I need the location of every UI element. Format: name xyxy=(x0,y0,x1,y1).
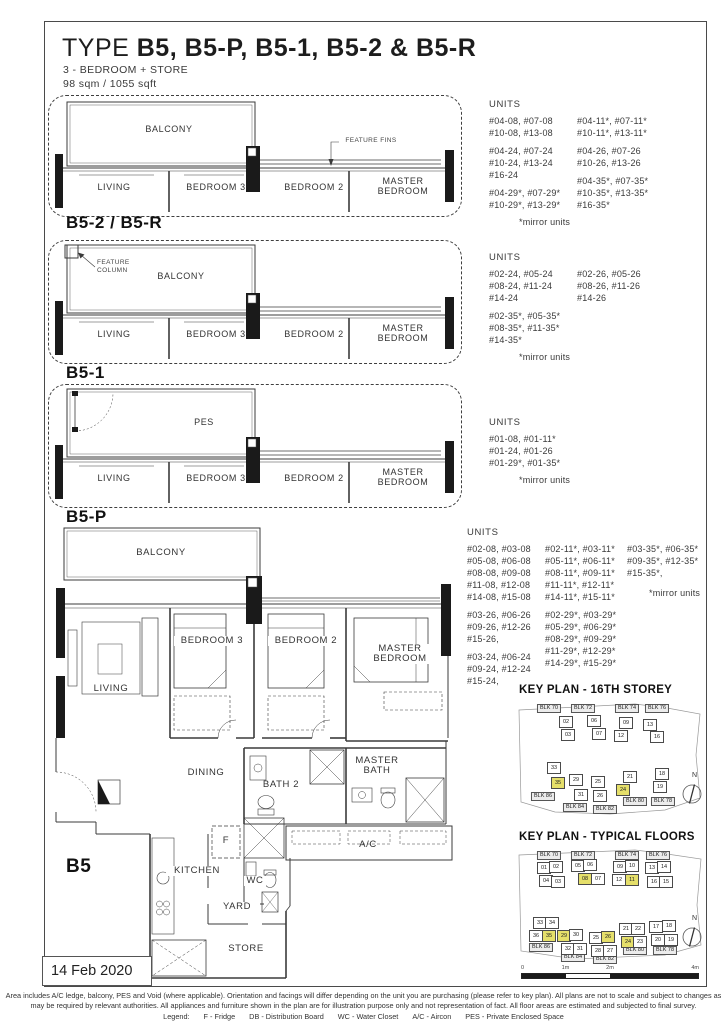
unit-list-line: #14-26 xyxy=(577,292,641,304)
room-label-master-bath: MASTER BATH xyxy=(350,756,404,776)
footer-disclaimer: Area includes A/C ledge, balcony, PES an… xyxy=(0,991,727,1022)
keyplan-unit-27: 27 xyxy=(603,945,617,957)
keyplan-unit-23: 23 xyxy=(633,936,647,948)
unit-list-line: #08-26, #11-26 xyxy=(577,280,641,292)
room-label-living: LIVING xyxy=(76,684,146,694)
unit-list-line: #02-26, #05-26 xyxy=(577,268,641,280)
unit-list-line: #09-35*, #12-35* xyxy=(627,555,709,567)
unit-list-line: #10-35*, #13-35* xyxy=(577,187,648,199)
variant-plan-b5-1: BALCONY LIVING BEDROOM 3 BEDROOM 2 MASTE… xyxy=(48,240,462,364)
keyplan-unit-13: 13 xyxy=(643,719,657,731)
keyplan-unit-18: 18 xyxy=(662,920,676,932)
keyplan-unit-22: 22 xyxy=(631,923,645,935)
legend-item: DB - Distribution Board xyxy=(249,1012,324,1021)
room-label-living: LIVING xyxy=(79,329,149,339)
room-label-db: DB xyxy=(100,786,120,796)
unit-list-line: #16-24 xyxy=(489,169,577,181)
room-label-balcony: BALCONY xyxy=(106,548,216,558)
unit-list-line: #02-24, #05-24 xyxy=(489,268,577,280)
room-label-bedroom2: BEDROOM 2 xyxy=(275,473,353,483)
units-column: #02-08, #03-08#05-08, #06-08#08-08, #09-… xyxy=(467,543,545,687)
room-label-bedroom2: BEDROOM 2 xyxy=(275,182,353,192)
keyplan-unit-09: 09 xyxy=(619,717,633,729)
keyplan-unit-25: 25 xyxy=(591,776,605,788)
unit-list-line: #10-26, #13-26 xyxy=(577,157,648,169)
scale-bar-line xyxy=(521,973,699,979)
keyplan-unit-16: 16 xyxy=(650,731,664,743)
unit-list-line: #05-29*, #06-29* xyxy=(545,621,627,633)
keyplan-unit-12: 12 xyxy=(614,730,628,742)
mirror-units-note: *mirror units xyxy=(489,351,704,363)
unit-type-subtitle: 3 - BEDROOM + STORE xyxy=(63,64,188,76)
unit-list-line: #01-08, #01-11* xyxy=(489,433,560,445)
units-heading: UNITS xyxy=(489,252,704,263)
unit-list-line: #02-08, #03-08 xyxy=(467,543,545,555)
unit-list-line: #08-11*, #09-11* xyxy=(545,567,627,579)
variant-plan-b5-2-b5-r: BALCONY LIVING BEDROOM 3 BEDROOM 2 MASTE… xyxy=(48,95,462,217)
keyplan-unit-17: 17 xyxy=(649,921,663,933)
unit-list-line: #10-11*, #13-11* xyxy=(577,127,648,139)
unit-list-line: #14-24 xyxy=(489,292,577,304)
keyplan-unit-35-highlighted: 35 xyxy=(542,930,556,942)
unit-list-line: #03-26, #06-26 xyxy=(467,609,545,621)
keyplan-unit-20: 20 xyxy=(651,934,665,946)
keyplan-block-label: BLK 76 xyxy=(646,851,670,860)
room-label-master-bedroom: MASTER BEDROOM xyxy=(367,323,439,343)
keyplan-unit-26-highlighted: 26 xyxy=(601,931,615,943)
legend-label: Legend: xyxy=(163,1012,189,1021)
keyplan-unit-30: 30 xyxy=(569,929,583,941)
keyplan-unit-12: 12 xyxy=(612,874,626,886)
unit-list-line: #05-08, #06-08 xyxy=(467,555,545,567)
keyplan-unit-03: 03 xyxy=(551,876,565,888)
keyplan-block-label: BLK 78 xyxy=(653,946,677,955)
compass-icon xyxy=(680,782,704,806)
keyplan-block-label: BLK 76 xyxy=(645,704,669,713)
compass-north-label: N xyxy=(692,772,697,779)
unit-list-line: #11-11*, #12-11* xyxy=(545,579,627,591)
feature-column-annotation: FEATURE COLUMN xyxy=(97,259,147,274)
title-type-codes: B5, B5-P, B5-1, B5-2 & B5-R xyxy=(137,34,477,62)
keyplan-block-label: BLK 70 xyxy=(537,704,561,713)
scale-label-1m: 1m xyxy=(562,965,570,971)
units-column: #02-11*, #03-11*#05-11*, #06-11*#08-11*,… xyxy=(545,543,627,687)
keyplan-block-label: BLK 74 xyxy=(615,704,639,713)
unit-list-line: #14-11*, #15-11* xyxy=(545,591,627,603)
keyplan-unit-08-highlighted: 08 xyxy=(578,873,592,885)
disclaimer-line-1: Area includes A/C ledge, balcony, PES an… xyxy=(0,991,727,1001)
unit-list-line: #04-24, #07-24 xyxy=(489,145,577,157)
units-list-b5-2: UNITS #04-08, #07-08#10-08, #13-08#04-24… xyxy=(489,99,704,228)
keyplan-unit-34: 34 xyxy=(545,917,559,929)
keyplan-block-label: BLK 78 xyxy=(651,797,675,806)
unit-list-line: #10-29*, #13-29* xyxy=(489,199,577,211)
unit-list-line: #08-08, #09-08 xyxy=(467,567,545,579)
unit-list-line: #04-35*, #07-35* xyxy=(577,175,648,187)
keyplan-unit-19: 19 xyxy=(653,781,667,793)
keyplan-unit-07: 07 xyxy=(592,728,606,740)
unit-list-line: #16-35* xyxy=(577,199,648,211)
keyplan-block-label: BLK 86 xyxy=(529,943,553,952)
unit-list-line: #04-29*, #07-29* xyxy=(489,187,577,199)
room-label-store: STORE xyxy=(218,944,274,954)
units-column: #03-35*, #06-35*#09-35*, #12-35*#15-35*, xyxy=(627,543,709,579)
unit-list-line: #04-26, #07-26 xyxy=(577,145,648,157)
mirror-units-note: *mirror units xyxy=(489,216,704,228)
keyplan-unit-15: 15 xyxy=(659,876,673,888)
scale-label-2m: 2m xyxy=(606,965,614,971)
units-column: #04-08, #07-08#10-08, #13-08#04-24, #07-… xyxy=(489,115,577,211)
room-label-master-bedroom: MASTER BEDROOM xyxy=(367,467,439,487)
keyplan-unit-02: 02 xyxy=(559,716,573,728)
keyplan-unit-07: 07 xyxy=(591,873,605,885)
legend-line: Legend:F - FridgeDB - Distribution Board… xyxy=(0,1012,727,1022)
unit-list-line: #15-26, xyxy=(467,633,545,645)
keyplan-unit-29: 29 xyxy=(569,774,583,786)
keyplan-block-label: BLK 86 xyxy=(531,792,555,801)
legend-item: WC - Water Closet xyxy=(338,1012,399,1021)
unit-list-line: #08-35*, #11-35* xyxy=(489,322,577,334)
room-label-bedroom3: BEDROOM 3 xyxy=(177,182,255,192)
keyplan-unit-35-highlighted: 35 xyxy=(551,777,565,789)
keyplan-typical-floors-map: N 0 1m 2m 4m BLK 7001020403BLK 720506080… xyxy=(515,847,706,985)
room-label-balcony: BALCONY xyxy=(119,124,219,134)
keyplan-unit-24-highlighted: 24 xyxy=(616,784,630,796)
compass-north-label: N xyxy=(692,915,697,922)
keyplan-unit-33: 33 xyxy=(547,762,561,774)
legend-item: PES - Private Enclosed Space xyxy=(465,1012,564,1021)
unit-list-line: #09-24, #12-24 xyxy=(467,663,545,675)
keyplan-16th-storey-map: N BLK 700203BLK 720607BLK 740912BLK 7613… xyxy=(515,700,706,826)
keyplan-unit-02: 02 xyxy=(549,861,563,873)
keyplan-unit-03: 03 xyxy=(561,729,575,741)
plan-name-b5: B5 xyxy=(66,856,91,878)
page-title: TYPE B5, B5-P, B5-1, B5-2 & B5-R xyxy=(62,34,476,63)
scale-label-4m: 4m xyxy=(691,965,699,971)
unit-list-line: #08-29*, #09-29* xyxy=(545,633,627,645)
unit-list-line: #03-24, #06-24 xyxy=(467,651,545,663)
room-label-dining: DINING xyxy=(174,768,238,778)
keyplan-unit-36: 36 xyxy=(529,930,543,942)
variant-name-b5-p: B5-P xyxy=(66,507,107,527)
keyplan-unit-31: 31 xyxy=(574,789,588,801)
unit-list-line: #14-29*, #15-29* xyxy=(545,657,627,669)
keyplan-unit-19: 19 xyxy=(664,934,678,946)
keyplan-unit-26: 26 xyxy=(593,790,607,802)
unit-list-line: #08-24, #11-24 xyxy=(489,280,577,292)
compass-icon xyxy=(680,925,704,949)
plan-date-stamp: 14 Feb 2020 xyxy=(42,956,152,986)
units-column: #02-26, #05-26#08-26, #11-26#14-26 xyxy=(577,268,641,346)
room-label-living: LIVING xyxy=(79,473,149,483)
mirror-units-note: *mirror units xyxy=(489,474,704,486)
units-list-b5: UNITS #02-08, #03-08#05-08, #06-08#08-08… xyxy=(467,527,709,687)
keyplan-block-label: BLK 70 xyxy=(537,851,561,860)
room-label-wc: WC xyxy=(244,876,266,886)
room-label-bath2: BATH 2 xyxy=(254,780,308,790)
title-prefix: TYPE xyxy=(62,34,137,62)
mirror-units-note: *mirror units xyxy=(627,587,709,599)
keyplan-unit-06: 06 xyxy=(587,715,601,727)
keyplan-unit-10: 10 xyxy=(625,860,639,872)
room-label-pes: PES xyxy=(154,417,254,427)
keyplan-unit-11-highlighted: 11 xyxy=(625,874,639,886)
room-label-bedroom3: BEDROOM 3 xyxy=(174,636,250,646)
unit-list-line: #14-35* xyxy=(489,334,577,346)
units-column: #01-08, #01-11*#01-24, #01-26#01-29*, #0… xyxy=(489,433,560,469)
unit-list-line: #11-08, #12-08 xyxy=(467,579,545,591)
variant-name-b5-1: B5-1 xyxy=(66,363,105,383)
room-label-fridge: F xyxy=(215,836,237,846)
disclaimer-line-2: may be required by relevant authorities.… xyxy=(0,1001,727,1011)
keyplan-unit-31: 31 xyxy=(573,943,587,955)
variant-plan-b5-p: PES LIVING BEDROOM 3 BEDROOM 2 MASTER BE… xyxy=(48,384,462,508)
room-label-master-bedroom: MASTER BEDROOM xyxy=(364,644,436,664)
variant-b5-2-drawing xyxy=(49,96,461,214)
units-column: #04-11*, #07-11*#10-11*, #13-11*#04-26, … xyxy=(577,115,648,211)
keyplan-block-label: BLK 80 xyxy=(623,797,647,806)
unit-list-line: #15-35*, xyxy=(627,567,709,579)
units-list-b5-1: UNITS #02-24, #05-24#08-24, #11-24#14-24… xyxy=(489,252,704,363)
units-heading: UNITS xyxy=(489,99,704,110)
unit-list-line: #14-08, #15-08 xyxy=(467,591,545,603)
unit-list-line: #02-29*, #03-29* xyxy=(545,609,627,621)
unit-list-line: #04-11*, #07-11* xyxy=(577,115,648,127)
room-label-bedroom2: BEDROOM 2 xyxy=(268,636,344,646)
keyplan-16th-storey-title: KEY PLAN - 16TH STOREY xyxy=(519,684,672,696)
unit-list-line: #02-35*, #05-35* xyxy=(489,310,577,322)
variant-b5-p-drawing xyxy=(49,385,461,505)
unit-list-line: #10-08, #13-08 xyxy=(489,127,577,139)
unit-list-line: #09-26, #12-26 xyxy=(467,621,545,633)
units-heading: UNITS xyxy=(467,527,709,538)
keyplan-unit-18: 18 xyxy=(655,768,669,780)
keyplan-unit-06: 06 xyxy=(583,859,597,871)
floor-plan-page: TYPE B5, B5-P, B5-1, B5-2 & B5-R 3 - BED… xyxy=(0,0,727,1029)
main-floor-plan-b5: BALCONY LIVING BEDROOM 3 BEDROOM 2 MASTE… xyxy=(48,526,463,988)
units-column: #02-24, #05-24#08-24, #11-24#14-24#02-35… xyxy=(489,268,577,346)
unit-list-line: #01-29*, #01-35* xyxy=(489,457,560,469)
unit-list-line: #11-29*, #12-29* xyxy=(545,645,627,657)
keyplan-block-label: BLK 84 xyxy=(563,803,587,812)
room-label-kitchen: KITCHEN xyxy=(166,866,228,876)
room-label-bedroom3: BEDROOM 3 xyxy=(177,329,255,339)
legend-item: F - Fridge xyxy=(204,1012,236,1021)
room-label-bedroom3: BEDROOM 3 xyxy=(177,473,255,483)
unit-list-line: #02-11*, #03-11* xyxy=(545,543,627,555)
units-list-b5-p: UNITS #01-08, #01-11*#01-24, #01-26#01-2… xyxy=(489,417,704,486)
room-label-master-bedroom: MASTER BEDROOM xyxy=(367,176,439,196)
variant-name-b5-2-b5-r: B5-2 / B5-R xyxy=(66,213,162,233)
keyplan-block-label: BLK 82 xyxy=(593,805,617,814)
room-label-living: LIVING xyxy=(79,182,149,192)
keyplan-typical-floors-title: KEY PLAN - TYPICAL FLOORS xyxy=(519,831,695,843)
scale-bar: 0 1m 2m 4m xyxy=(521,965,699,979)
keyplan-unit-21: 21 xyxy=(623,771,637,783)
room-label-yard: YARD xyxy=(214,902,260,912)
room-label-bedroom2: BEDROOM 2 xyxy=(275,329,353,339)
unit-area: 98 sqm / 1055 sqft xyxy=(63,78,157,90)
unit-list-line: #01-24, #01-26 xyxy=(489,445,560,457)
keyplan-unit-14: 14 xyxy=(657,861,671,873)
legend-item: A/C - Aircon xyxy=(412,1012,451,1021)
unit-list-line: #03-35*, #06-35* xyxy=(627,543,709,555)
unit-list-line: #04-08, #07-08 xyxy=(489,115,577,127)
unit-list-line: #10-24, #13-24 xyxy=(489,157,577,169)
keyplan-block-label: BLK 74 xyxy=(615,851,639,860)
feature-fins-annotation: FEATURE FINS xyxy=(343,137,399,145)
scale-label-0: 0 xyxy=(521,965,524,971)
units-heading: UNITS xyxy=(489,417,704,428)
keyplan-block-label: BLK 72 xyxy=(571,704,595,713)
room-label-ac: A/C xyxy=(348,840,388,850)
unit-list-line: #05-11*, #06-11* xyxy=(545,555,627,567)
